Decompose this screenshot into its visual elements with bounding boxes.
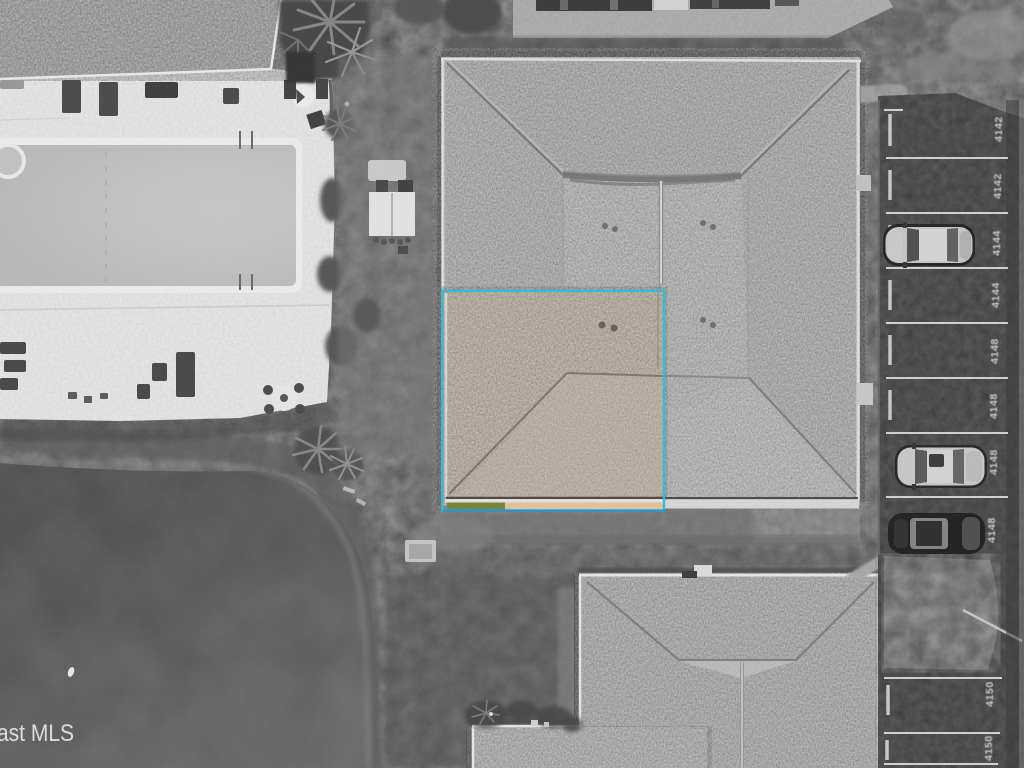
svg-text:4148: 4148 bbox=[988, 393, 1000, 419]
svg-text:4150: 4150 bbox=[983, 735, 995, 761]
svg-text:4142: 4142 bbox=[992, 173, 1004, 199]
svg-text:4148: 4148 bbox=[988, 449, 1000, 475]
svg-text:4148: 4148 bbox=[989, 338, 1001, 364]
svg-text:4144: 4144 bbox=[991, 230, 1003, 256]
svg-text:ast MLS: ast MLS bbox=[0, 720, 74, 747]
svg-text:4148: 4148 bbox=[986, 517, 998, 543]
svg-text:4142: 4142 bbox=[993, 116, 1005, 142]
svg-text:4144: 4144 bbox=[990, 282, 1002, 308]
svg-text:4150: 4150 bbox=[984, 681, 996, 707]
